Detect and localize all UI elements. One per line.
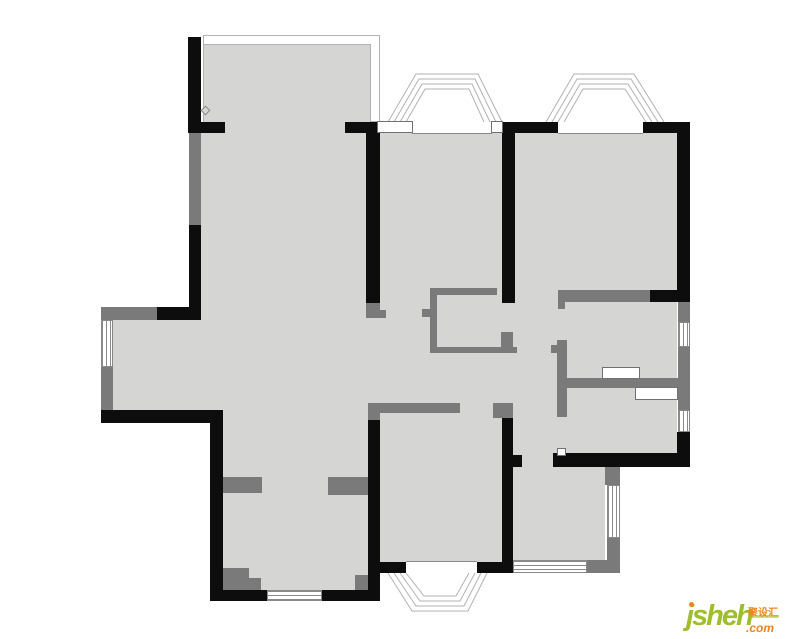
wall-segment-black bbox=[366, 122, 380, 303]
watermark-logo: jsheh 聚设汇 .com bbox=[686, 601, 796, 637]
wall-segment-gray bbox=[558, 290, 650, 302]
wall-segment-black bbox=[513, 455, 522, 467]
bay-window-line bbox=[552, 79, 658, 122]
wall-segment-gray bbox=[249, 578, 261, 590]
room-edge-line bbox=[412, 133, 492, 134]
wall-segment-black bbox=[380, 562, 406, 573]
bay-window-line bbox=[394, 573, 481, 606]
logo-text: jsheh bbox=[686, 601, 752, 631]
wall-segment-black bbox=[210, 423, 223, 601]
wall-segment-gray bbox=[678, 347, 690, 410]
wall-segment-black bbox=[502, 122, 515, 303]
wall-segment-gray bbox=[558, 302, 565, 309]
wall-segment-gray bbox=[430, 288, 497, 295]
wall-segment-black bbox=[502, 418, 513, 573]
wall-segment-black bbox=[553, 453, 690, 467]
wall-segment-gray bbox=[189, 133, 201, 225]
door-panel bbox=[557, 448, 566, 456]
wall-segment-black bbox=[650, 290, 690, 302]
window bbox=[267, 590, 322, 601]
wall-segment-gray bbox=[607, 538, 620, 561]
logo-j-dot-icon bbox=[689, 602, 694, 607]
wall-segment-gray bbox=[493, 403, 513, 418]
floor-area bbox=[201, 133, 223, 423]
door-panel bbox=[602, 367, 640, 379]
room-edge-line bbox=[558, 133, 643, 134]
bay-window-line bbox=[406, 89, 484, 122]
bay-window-line bbox=[400, 573, 475, 601]
wall-segment-gray bbox=[422, 309, 430, 317]
floor-plan-page: jsheh 聚设汇 .com bbox=[0, 0, 800, 639]
wall-segment-gray bbox=[355, 575, 368, 590]
wall-segment-gray bbox=[366, 303, 380, 318]
door-panel bbox=[635, 387, 678, 400]
wall-segment-gray bbox=[557, 340, 567, 417]
wall-segment-black bbox=[157, 307, 201, 320]
logo-domain-suffix: .com bbox=[746, 621, 774, 635]
door-panel bbox=[491, 121, 503, 133]
wall-segment-black bbox=[188, 37, 201, 133]
floor-area bbox=[513, 453, 605, 560]
logo-subtext-bar bbox=[749, 615, 779, 618]
window bbox=[607, 485, 620, 538]
wall-segment-black bbox=[189, 225, 201, 320]
door-panel bbox=[377, 121, 413, 133]
bay-window-line bbox=[400, 84, 490, 122]
wall-segment-gray bbox=[223, 477, 262, 493]
window bbox=[678, 410, 690, 432]
wall-segment-gray bbox=[551, 345, 557, 353]
wall-segment-gray bbox=[380, 310, 386, 318]
wall-segment-black bbox=[188, 122, 225, 133]
wall-segment-black bbox=[677, 432, 690, 467]
wall-segment-gray bbox=[368, 413, 380, 420]
wall-segment-gray bbox=[101, 367, 113, 410]
wall-segment-gray bbox=[587, 560, 620, 573]
wall-segment-black bbox=[677, 122, 690, 298]
window bbox=[678, 322, 690, 347]
wall-segment-black bbox=[368, 420, 380, 601]
room-edge-line bbox=[406, 561, 477, 562]
bay-window-line bbox=[388, 573, 487, 611]
wall-segment-gray bbox=[430, 347, 517, 353]
window bbox=[101, 320, 113, 367]
wall-segment-gray bbox=[605, 467, 620, 485]
bay-window-line bbox=[558, 84, 652, 122]
window bbox=[513, 560, 587, 573]
wall-segment-gray bbox=[328, 477, 368, 495]
bay-window-line bbox=[406, 573, 469, 596]
wall-segment-gray bbox=[430, 288, 437, 353]
bay-window-line bbox=[546, 74, 664, 122]
wall-segment-black bbox=[101, 410, 223, 423]
floor-area bbox=[113, 320, 201, 410]
wall-segment-gray bbox=[501, 332, 513, 347]
balcony-floor bbox=[204, 44, 371, 133]
bay-window-line bbox=[388, 74, 502, 122]
floor-plan-canvas bbox=[0, 0, 800, 639]
wall-segment-gray bbox=[368, 403, 460, 413]
wall-segment-gray bbox=[101, 307, 157, 320]
wall-segment-gray bbox=[223, 568, 249, 590]
wall-segment-black bbox=[210, 590, 267, 601]
bay-window-line bbox=[394, 79, 496, 122]
bay-window-line bbox=[564, 89, 646, 122]
